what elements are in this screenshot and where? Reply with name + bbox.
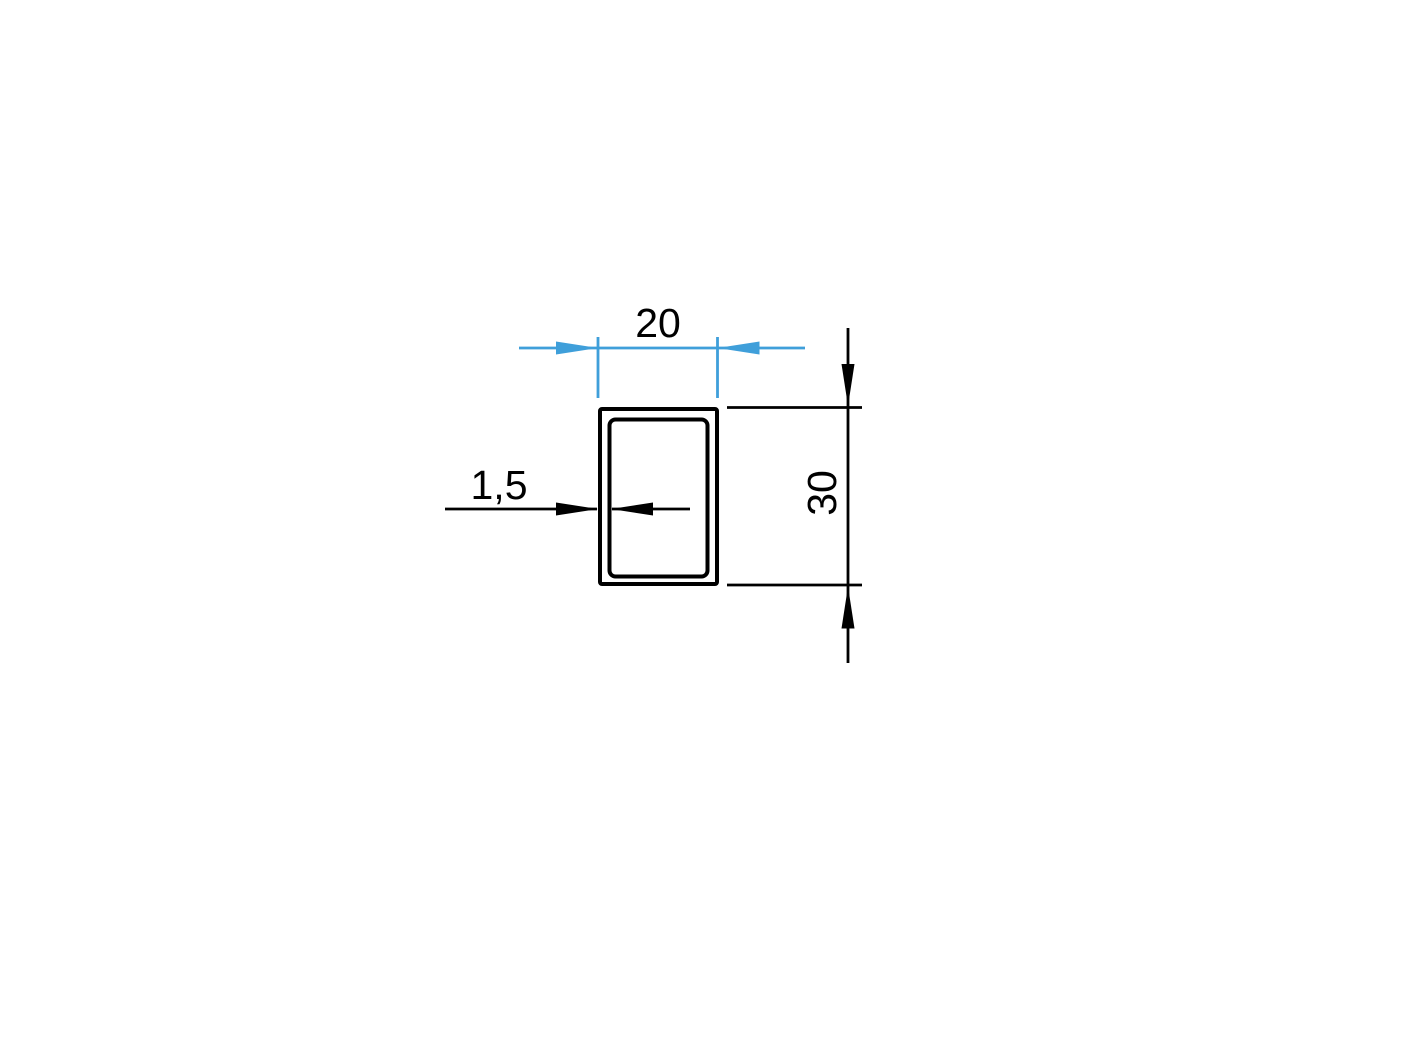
wall-thickness-dimension: 1,5 bbox=[445, 462, 690, 516]
tube-profile bbox=[600, 409, 717, 584]
height-arrow-down-icon bbox=[842, 364, 855, 406]
thickness-arrow-left-icon bbox=[611, 503, 653, 516]
thickness-dimension-value: 1,5 bbox=[471, 462, 528, 508]
thickness-arrow-right-icon bbox=[556, 503, 598, 516]
drawing-page: 20 30 1,5 bbox=[0, 0, 1417, 1062]
width-arrow-left-icon bbox=[556, 342, 598, 355]
tube-outer-wall bbox=[600, 409, 717, 584]
height-dimension: 30 bbox=[727, 328, 862, 663]
height-dimension-value: 30 bbox=[799, 470, 845, 516]
width-dimension: 20 bbox=[519, 300, 805, 398]
width-arrow-right-icon bbox=[718, 342, 760, 355]
height-arrow-up-icon bbox=[842, 587, 855, 629]
width-dimension-value: 20 bbox=[635, 300, 681, 346]
tube-inner-wall bbox=[610, 420, 708, 577]
technical-drawing-canvas: 20 30 1,5 bbox=[0, 0, 1417, 1062]
